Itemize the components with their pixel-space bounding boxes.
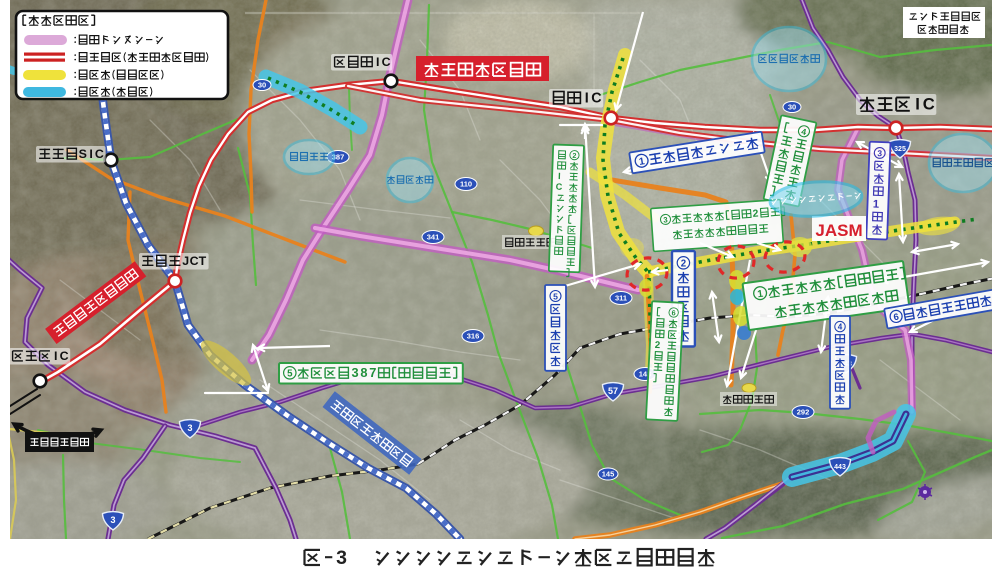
svg-text:I: I (915, 94, 920, 113)
svg-text:57: 57 (608, 386, 618, 396)
svg-text:2: 2 (572, 152, 576, 160)
svg-text:311: 311 (615, 294, 627, 303)
svg-text:30: 30 (788, 103, 796, 112)
svg-text:2: 2 (752, 208, 759, 219)
svg-text:3: 3 (187, 423, 192, 433)
svg-text:4: 4 (838, 323, 843, 332)
svg-text:I: I (585, 90, 589, 106)
svg-text:3: 3 (351, 365, 358, 380)
svg-text:T: T (199, 254, 207, 268)
svg-text:3: 3 (336, 547, 347, 569)
svg-text:443: 443 (834, 464, 846, 471)
svg-text:C: C (95, 147, 104, 161)
svg-text:2: 2 (681, 259, 686, 270)
svg-text:6: 6 (671, 308, 676, 317)
svg-text:292: 292 (797, 408, 810, 417)
svg-text:316: 316 (467, 332, 480, 341)
svg-text:341: 341 (427, 233, 440, 242)
svg-text:325: 325 (894, 146, 906, 153)
svg-text:3: 3 (110, 515, 115, 525)
svg-text:7: 7 (369, 365, 376, 380)
svg-text:C: C (591, 90, 601, 106)
svg-text:J: J (182, 254, 189, 268)
svg-text:30: 30 (258, 81, 266, 90)
svg-text:1: 1 (873, 199, 880, 211)
svg-text:C: C (382, 55, 391, 69)
svg-text:I: I (558, 171, 561, 181)
svg-text:5: 5 (287, 369, 293, 380)
svg-text:2: 2 (654, 340, 660, 351)
svg-text:8: 8 (360, 365, 367, 380)
svg-text:110: 110 (460, 180, 472, 189)
svg-text:5: 5 (553, 291, 558, 301)
svg-text:C: C (190, 254, 199, 268)
svg-text:I: I (89, 147, 92, 161)
svg-text:3: 3 (877, 148, 882, 158)
svg-text:C: C (556, 182, 563, 192)
svg-text:I: I (376, 55, 379, 69)
svg-text:C: C (60, 349, 69, 363)
svg-text:C: C (923, 94, 935, 113)
svg-text:I: I (54, 349, 57, 363)
svg-text:JASM: JASM (815, 221, 862, 240)
svg-text:S: S (79, 147, 87, 161)
svg-text:145: 145 (602, 470, 615, 479)
